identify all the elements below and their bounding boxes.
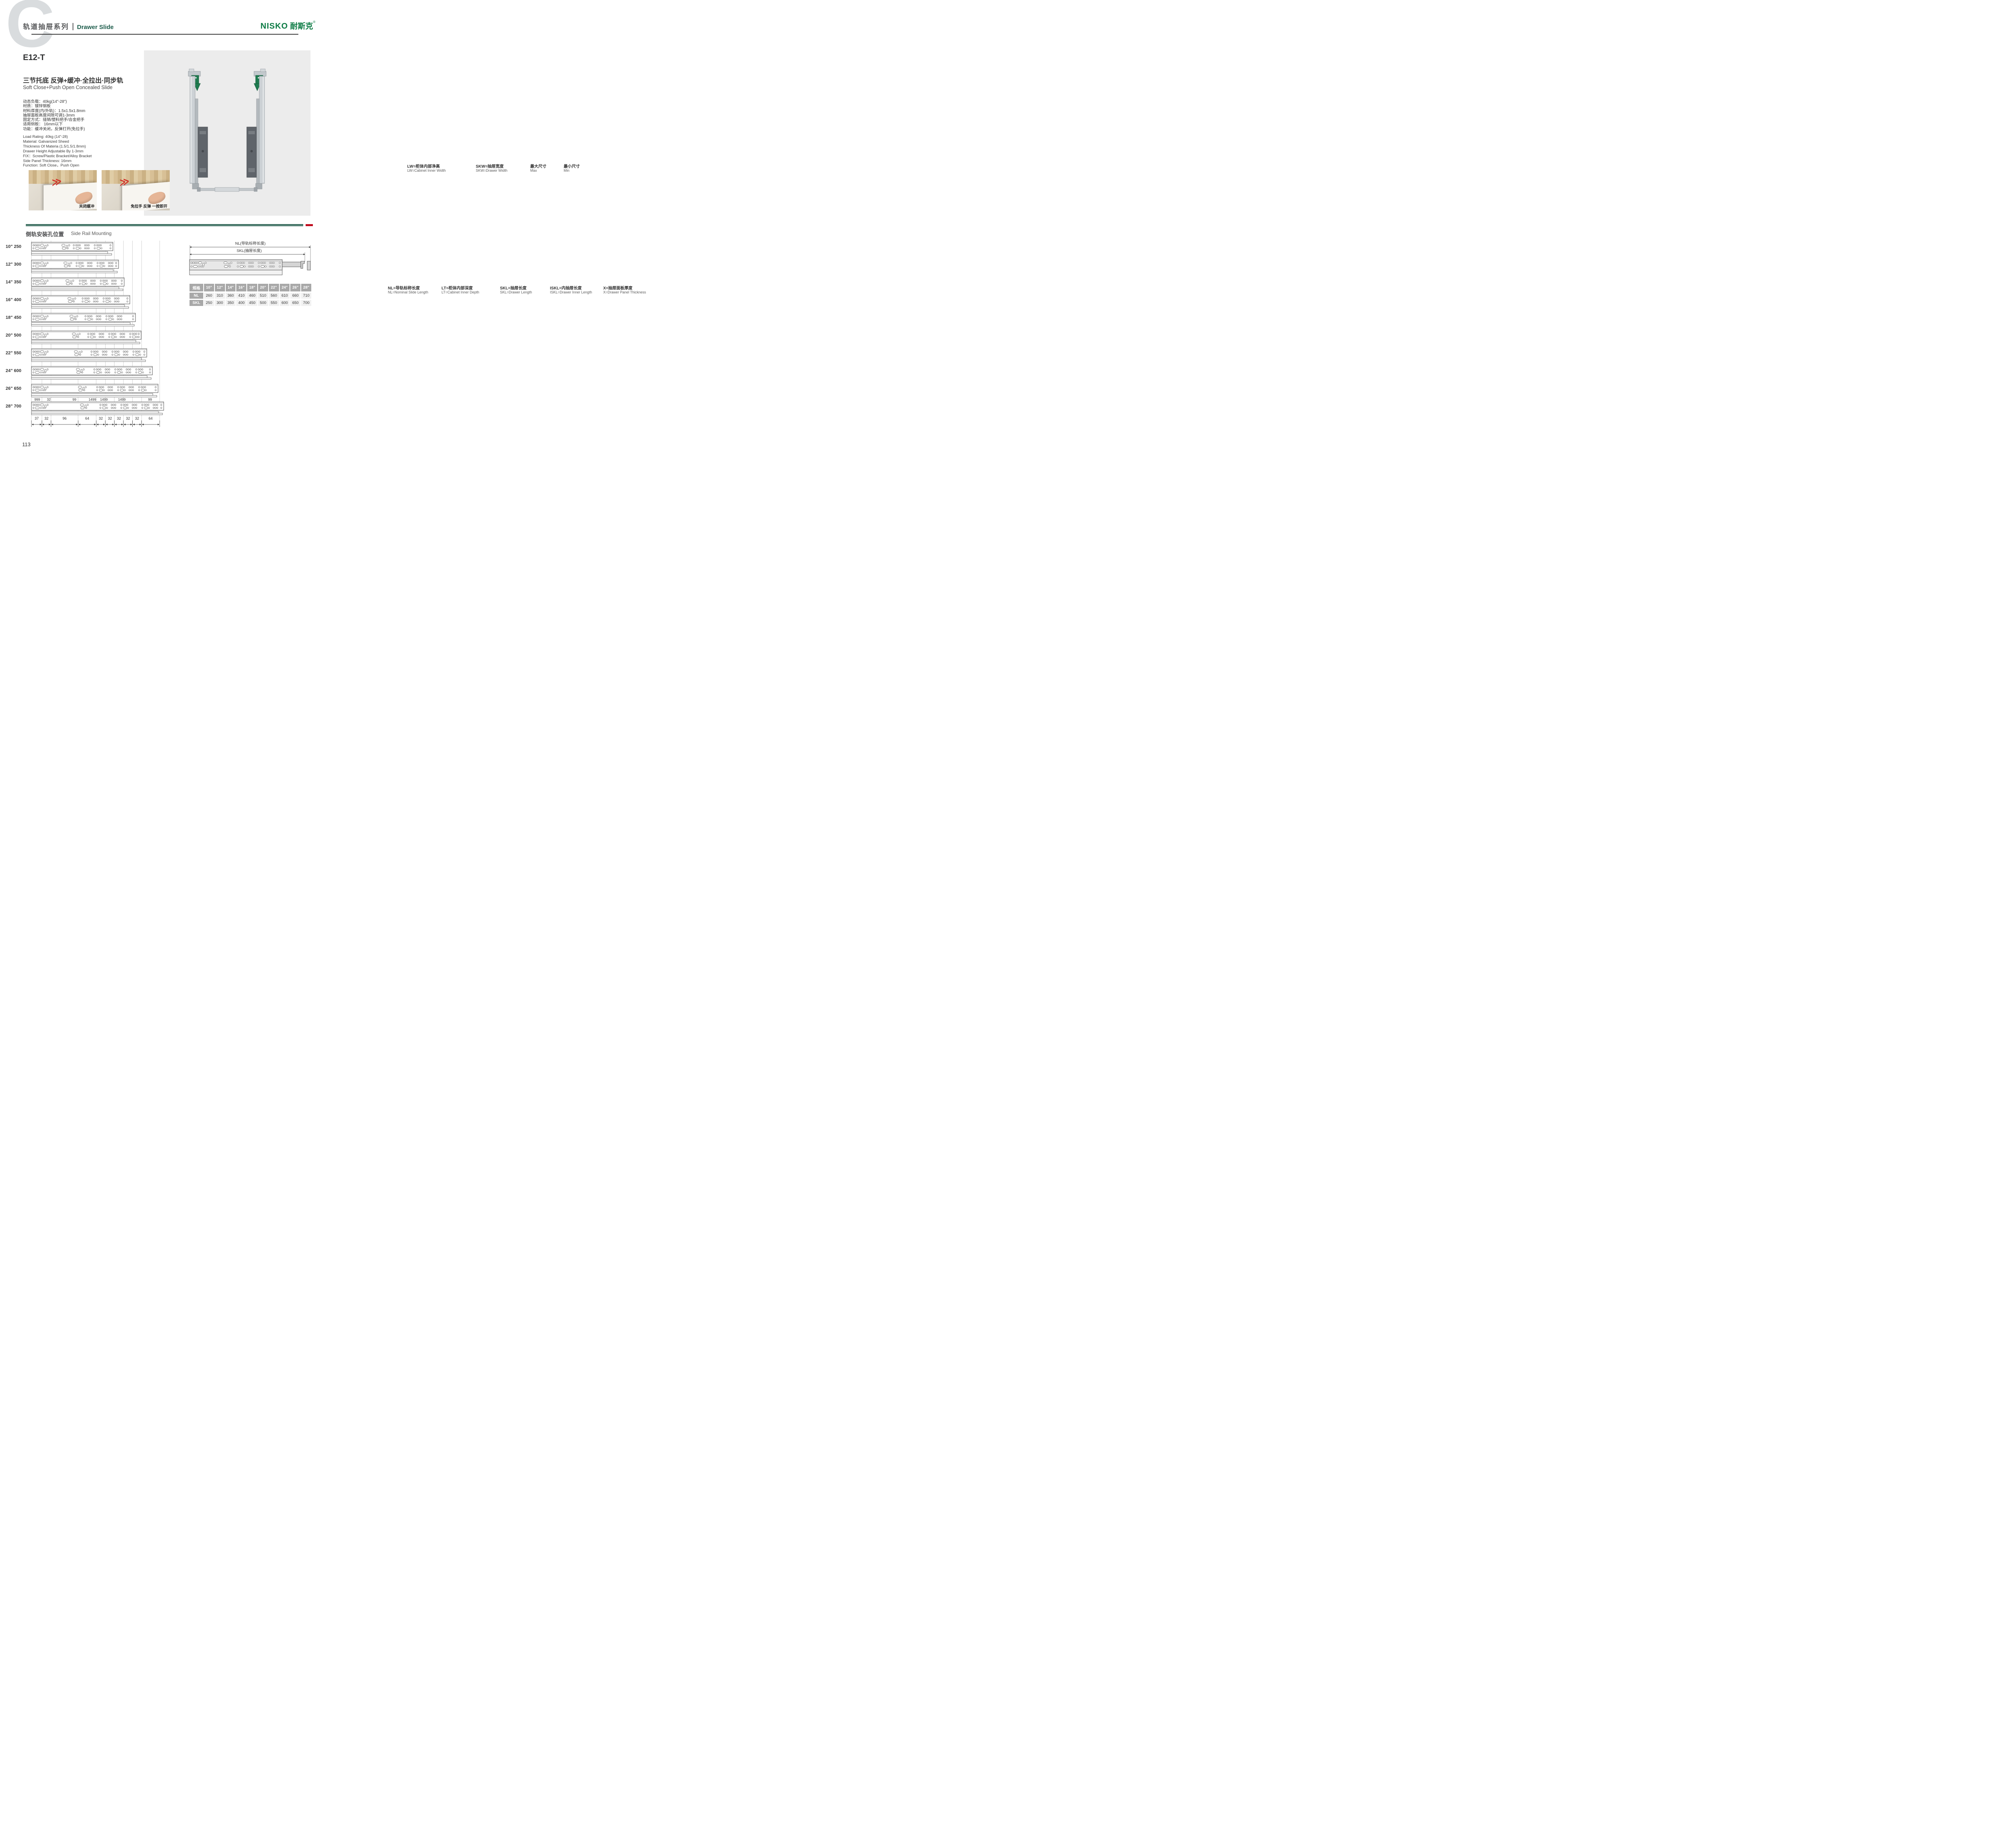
table-cell: 610: [280, 293, 290, 299]
rail-size-label: 14" 350: [6, 280, 21, 285]
spec-line-en: Material: Galvanized Sheed: [23, 139, 92, 144]
rail-drawing: [31, 278, 124, 291]
rail-bottom-dim: 32: [44, 416, 48, 420]
rail-drawing: [31, 384, 158, 397]
width-legend-en: LW=Cabinet Inner Width: [407, 168, 446, 173]
specs-cn: 动态负载：40kg(14"-28")材质：镀锌钢板材料厚度(内/外轨)：1.5x…: [23, 100, 85, 132]
nl-label: NL(导轨标称长度): [235, 241, 265, 246]
depth-legend-cn: ISKL=内抽屉长度: [550, 285, 582, 291]
table-cell: 710: [301, 293, 311, 299]
soft-close-arrows-icon: ≫: [52, 177, 62, 188]
table-header-cell: 18": [247, 284, 257, 291]
rail-size-label: 12" 300: [6, 262, 21, 267]
rail-drawing: [31, 366, 152, 379]
rail-size-label: 16" 400: [6, 297, 21, 302]
depth-legend-en: ISKL=Drawer Inner Length: [550, 290, 592, 294]
product-model: E12-T: [23, 53, 45, 62]
table-header-cell: 14": [226, 284, 236, 291]
table-cell: 500: [258, 300, 268, 306]
nl-skl-diagram: NL(导轨标称长度) SKL(抽屉长度): [189, 241, 312, 281]
rail-bottom-dim: 32: [99, 416, 103, 420]
table-cell: 410: [236, 293, 246, 299]
table-cell: 450: [247, 300, 257, 306]
page-left: C 轨道抽屉系列Drawer Slide NISKO耐斯克® E12-T 三节托…: [0, 0, 338, 462]
page-right: C 轨道抽屉系列Drawer Slide NISKO耐斯克® 安装指南-柜体尺寸…: [338, 0, 676, 462]
spec-line-cn: 材料厚度(内/外轨)：1.5x1.5x1.8mm: [23, 109, 85, 114]
depth-legend-en: X=Drawer Panel Thickness: [603, 290, 646, 294]
series-title-en: Drawer Slide: [77, 24, 114, 31]
rail-bottom-dim: 32: [117, 416, 121, 420]
specs-en: Load Rating: 40kg (14"-28)Material: Galv…: [23, 135, 92, 168]
photo-soft-close: ≫ 关闭缓冲: [29, 170, 97, 210]
rail-size-label: 22" 550: [6, 351, 21, 356]
table-cell: 350: [226, 300, 236, 306]
section-bar-red: [306, 224, 313, 226]
table-header-cell: 规格: [190, 284, 203, 291]
wood-drawer: [29, 170, 97, 184]
rail-drawing: [31, 242, 113, 255]
spec-line-en: Load Rating: 40kg (14"-28): [23, 135, 92, 139]
skl-label: SKL(抽屉长度): [237, 248, 262, 253]
width-legend-cn: 最大尺寸: [530, 163, 546, 169]
spec-line-cn: 材质：镀锌钢板: [23, 104, 85, 109]
depth-legend-en: SKL=Drawer Length: [500, 290, 532, 294]
product-title-cn: 三节托底 反弹+缓冲·全拉出·同步轨: [23, 75, 123, 85]
table-header-cell: 12": [215, 284, 225, 291]
rail-drawing: [31, 331, 141, 344]
rail-drawing: [31, 402, 164, 415]
spec-line-en: Side Panel Thickness: 16mm: [23, 159, 92, 164]
rail-top-dim: 99: [73, 397, 77, 401]
table-cell: 250: [204, 300, 214, 306]
spec-line-en: Function: Soft Close，Push Open: [23, 163, 92, 168]
depth-legend-en: LT=Cabinet Inner Depth: [442, 290, 479, 294]
page-number-left: 113: [22, 441, 31, 447]
depth-legend-en: NL=Nominal Slide Length: [388, 290, 428, 294]
width-legend-en: SKW=Drawer Width: [476, 168, 507, 173]
width-legend-en: Max: [530, 168, 537, 173]
rail-drawing: [31, 313, 135, 326]
table-header-cell: 26": [290, 284, 300, 291]
depth-legend-cn: SKL=抽屉长度: [500, 285, 527, 291]
size-table: 规格10"12"14"16"18"20"22"24"26"28"NL260310…: [190, 284, 311, 306]
rail-size-label: 10" 250: [6, 244, 21, 249]
table-header-cell: 10": [204, 284, 214, 291]
rail-bottom-dim: 37: [35, 416, 39, 420]
table-cell: 600: [280, 300, 290, 306]
header-rule: [31, 34, 298, 35]
table-cell: 310: [215, 293, 225, 299]
table-cell: 660: [290, 293, 300, 299]
catalog-spread: C 轨道抽屉系列Drawer Slide NISKO耐斯克® E12-T 三节托…: [0, 0, 676, 462]
table-cell: 300: [215, 300, 225, 306]
photo-caption: 免拉手 反弹 一按即开: [131, 203, 167, 209]
wood-drawer: [102, 170, 170, 184]
rail-size-label: 26" 650: [6, 386, 21, 391]
spec-line-en: FIX：Screw/Plastic Bracket/Alloy Bracket: [23, 154, 92, 159]
rail-size-label: 18" 450: [6, 315, 21, 320]
rail-top-dim: 1499: [89, 397, 96, 401]
nisko-logo: NISKO耐斯克®: [260, 20, 315, 31]
product-title-en: Soft Close+Push Open Concealed Slide: [23, 85, 112, 90]
section-bar-green: [26, 224, 303, 226]
width-legend-cn: SKW=抽屉宽度: [476, 163, 504, 169]
photo-push-open: ≫ 免拉手 反弹 一按即开: [102, 170, 170, 210]
rail-drawing: [31, 260, 119, 273]
table-header-cell: 20": [258, 284, 268, 291]
rail-top-dim: 999: [34, 397, 40, 401]
table-cell: 460: [247, 293, 257, 299]
width-legend-en: Min: [564, 168, 569, 173]
rail-drawing: [31, 295, 130, 308]
rail-top-dim: 1499: [100, 397, 108, 401]
rail-size-label: 24" 600: [6, 368, 21, 373]
table-header-cell: 24": [280, 284, 290, 291]
rail-size-label: 20" 500: [6, 333, 21, 338]
rail-bottom-dim: 32: [135, 416, 139, 420]
spec-line-cn: 功能：缓冲关闭，反弹打开(免拉手): [23, 127, 85, 132]
rail-bottom-dim: 32: [108, 416, 112, 420]
depth-legend-cn: LT=柜体内部深度: [442, 285, 473, 291]
table-cell: 360: [226, 293, 236, 299]
rail-hole-diagram: 9993299149914991499993732966432323232326…: [24, 240, 177, 429]
width-legend-cn: LW=柜体内部净高: [407, 163, 440, 169]
divider: [73, 23, 73, 30]
side-rail-title-cn: 侧轨安装孔位置: [26, 230, 64, 238]
rail-bottom-dim: 96: [62, 416, 67, 420]
logo-text: NISKO: [260, 22, 288, 31]
spec-line-en: Drawer Height Adjustable By 1-3mm: [23, 149, 92, 154]
rail-bottom-dim: 64: [85, 416, 89, 420]
table-cell: 650: [290, 300, 300, 306]
rail-bottom-dim: 64: [149, 416, 153, 420]
table-row-label: NL: [190, 293, 203, 299]
table-cell: 510: [258, 293, 268, 299]
depth-legend-cn: X=抽屉面板厚度: [603, 285, 633, 291]
spec-line-cn: 适用侧板： 16mm以下: [23, 123, 85, 127]
rail-size-label: 28" 700: [6, 404, 21, 409]
rail-drawing: [31, 349, 147, 362]
table-header-cell: 22": [269, 284, 279, 291]
table-cell: 700: [301, 300, 311, 306]
page-header: 轨道抽屉系列Drawer Slide: [23, 21, 114, 31]
spec-line-en: Thickness Of Materia (1.5/1.5/1.8mm): [23, 144, 92, 149]
table-cell: 260: [204, 293, 214, 299]
rail-top-dim: 99: [148, 397, 152, 401]
rail-bottom-dim: 32: [126, 416, 130, 420]
table-cell: 560: [269, 293, 279, 299]
logo-cn: 耐斯克: [290, 22, 313, 31]
table-header-cell: 28": [301, 284, 311, 291]
rail-top-dim: 1499: [118, 397, 126, 401]
width-legend-cn: 最小尺寸: [564, 163, 580, 169]
registered-mark: ®: [313, 20, 315, 24]
table-row-label: SKL: [190, 300, 203, 306]
table-cell: 400: [236, 300, 246, 306]
photo-caption: 关闭缓冲: [79, 203, 94, 209]
side-rail-title-en: Side Rail Mounting: [71, 231, 112, 236]
table-cell: 550: [269, 300, 279, 306]
depth-legend-cn: NL=导轨标称长度: [388, 285, 420, 291]
rail-top-dim: 32: [47, 397, 51, 401]
table-header-cell: 16": [236, 284, 246, 291]
series-title-cn: 轨道抽屉系列: [23, 23, 69, 31]
push-open-arrows-icon: ≫: [119, 177, 130, 188]
